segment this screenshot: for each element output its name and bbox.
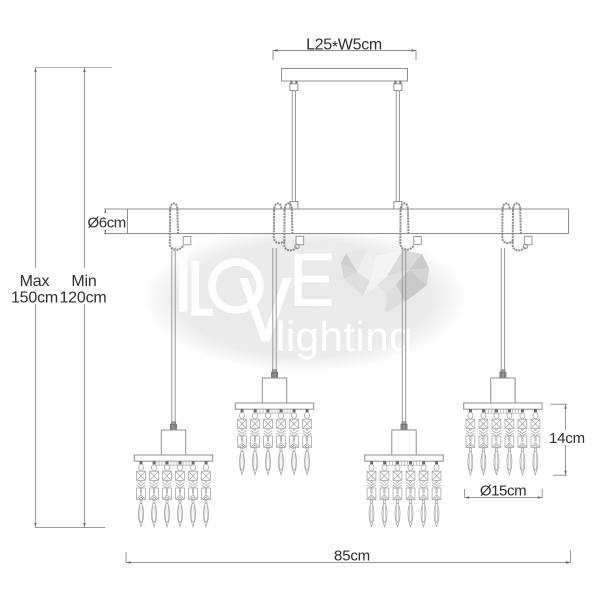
svg-text:L25*W5cm: L25*W5cm (306, 37, 382, 57)
svg-text:Ø6cm: Ø6cm (88, 215, 126, 232)
svg-text:Min: Min (71, 273, 96, 290)
svg-text:Ø15cm: Ø15cm (480, 483, 526, 500)
svg-text:Max: Max (20, 273, 50, 290)
svg-text:14cm: 14cm (549, 430, 585, 447)
svg-text:150cm: 150cm (11, 290, 58, 307)
svg-text:120cm: 120cm (59, 290, 106, 307)
svg-text:85cm: 85cm (334, 548, 370, 565)
svg-text:lighting: lighting (276, 313, 413, 360)
